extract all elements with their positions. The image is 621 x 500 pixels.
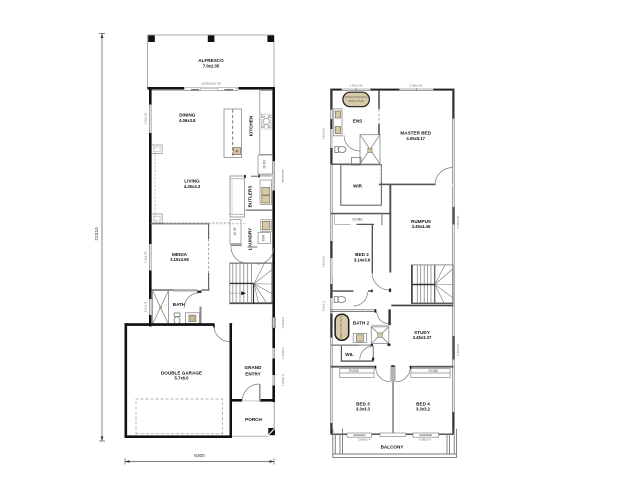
svg-text:WIL: WIL xyxy=(345,352,354,357)
svg-text:ALFRESCO: ALFRESCO xyxy=(198,58,224,63)
svg-text:ROBE: ROBE xyxy=(352,218,363,222)
svg-text:BALCONY: BALCONY xyxy=(381,444,404,449)
svg-text:BATH: BATH xyxy=(173,302,186,307)
svg-text:2.45x1.5: 2.45x1.5 xyxy=(456,344,460,356)
svg-text:DOUBLE GARAGE: DOUBLE GARAGE xyxy=(161,370,202,375)
svg-text:1.06x0.6: 1.06x0.6 xyxy=(281,374,285,386)
svg-text:DINING: DINING xyxy=(179,112,196,117)
svg-text:7.0x2.05: 7.0x2.05 xyxy=(203,63,220,68)
svg-text:3.15x3.65: 3.15x3.65 xyxy=(170,257,189,262)
svg-text:1.45x1.5: 1.45x1.5 xyxy=(322,256,326,268)
svg-text:2.45x0.97: 2.45x0.97 xyxy=(456,215,460,229)
svg-text:2145x3010 SD: 2145x3010 SD xyxy=(201,82,222,86)
svg-text:1.8x2.06: 1.8x2.06 xyxy=(143,251,147,263)
svg-text:FREE STDG BATH: FREE STDG BATH xyxy=(339,314,343,340)
svg-text:BATH 2: BATH 2 xyxy=(353,320,370,325)
svg-text:8300: 8300 xyxy=(194,453,205,459)
svg-text:ROBE: ROBE xyxy=(428,369,439,373)
svg-text:1.45x1.5: 1.45x1.5 xyxy=(322,128,326,140)
svg-text:GRAND: GRAND xyxy=(245,365,263,370)
svg-text:22310: 22310 xyxy=(94,227,100,241)
svg-text:WIR: WIR xyxy=(353,184,363,189)
svg-text:ENTRY: ENTRY xyxy=(245,371,261,376)
svg-text:LIVING: LIVING xyxy=(184,179,200,184)
svg-text:15 05: 15 05 xyxy=(233,227,237,235)
svg-text:0.85x2.4: 0.85x2.4 xyxy=(419,438,431,442)
svg-text:3.3x3.3: 3.3x3.3 xyxy=(356,407,371,412)
svg-text:2145x2.4: 2145x2.4 xyxy=(358,438,371,442)
svg-text:BUTLERS: BUTLERS xyxy=(248,186,253,208)
svg-text:1.8x2.94: 1.8x2.94 xyxy=(143,113,147,125)
svg-text:ROBE: ROBE xyxy=(349,369,360,373)
svg-text:3.45x4.45: 3.45x4.45 xyxy=(412,224,431,229)
svg-text:W/M: W/M xyxy=(262,234,266,241)
svg-text:5.7x6.0: 5.7x6.0 xyxy=(175,376,190,381)
svg-text:KITCHEN: KITCHEN xyxy=(249,115,254,136)
svg-text:4.26x4.3: 4.26x4.3 xyxy=(184,184,201,189)
svg-text:1.45x2.94: 1.45x2.94 xyxy=(349,84,363,88)
svg-text:PORCH: PORCH xyxy=(245,417,262,422)
svg-text:0.6x1.5: 0.6x1.5 xyxy=(322,301,326,311)
svg-text:0.6x1.8: 0.6x1.8 xyxy=(143,302,147,312)
svg-text:ENS: ENS xyxy=(353,118,363,123)
svg-text:4.05x5.17: 4.05x5.17 xyxy=(406,136,425,141)
svg-text:4.06x3.8: 4.06x3.8 xyxy=(179,118,196,123)
svg-text:STUDY: STUDY xyxy=(414,330,430,335)
svg-text:3.3x3.2: 3.3x3.2 xyxy=(416,407,431,412)
svg-text:3.14x3.6: 3.14x3.6 xyxy=(354,257,371,262)
svg-text:3.45x3.37: 3.45x3.37 xyxy=(413,335,432,340)
svg-text:BATH TUB: BATH TUB xyxy=(349,99,364,103)
svg-text:MASTER BED: MASTER BED xyxy=(400,130,431,135)
svg-text:1.06x0.6: 1.06x0.6 xyxy=(281,317,285,329)
svg-text:20 RJ: 20 RJ xyxy=(263,160,267,169)
svg-text:2.05x1.81: 2.05x1.81 xyxy=(409,84,423,88)
svg-text:RUMPUS: RUMPUS xyxy=(411,219,431,224)
svg-text:aluminium: aluminium xyxy=(281,169,285,183)
svg-text:1.06x0.6: 1.06x0.6 xyxy=(281,347,285,359)
